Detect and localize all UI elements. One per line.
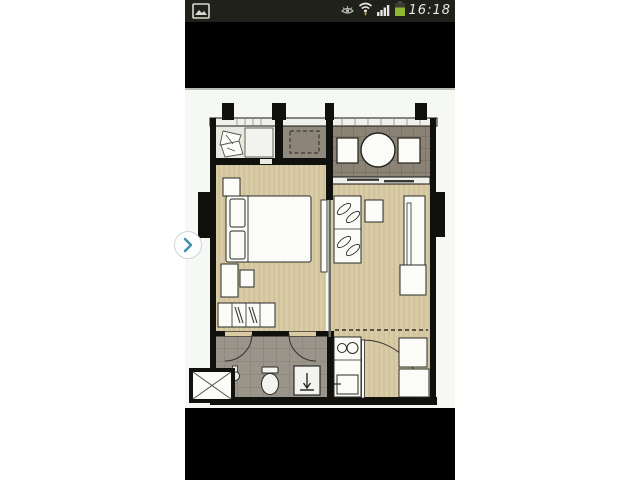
daybed-sofa bbox=[334, 196, 361, 263]
bed-bench bbox=[221, 264, 238, 297]
signal-strength-icon bbox=[376, 2, 391, 21]
terrace-sliding-window bbox=[331, 177, 430, 184]
shoe-cabinet-upper bbox=[399, 338, 427, 367]
bed-side-table bbox=[240, 270, 254, 287]
nightstand bbox=[223, 178, 240, 196]
wall-cabinet bbox=[400, 265, 426, 295]
side-table bbox=[365, 200, 383, 222]
shower bbox=[294, 366, 320, 395]
android-status-bar: 16:18 bbox=[185, 0, 455, 22]
shoe-cabinet-lower bbox=[399, 369, 429, 397]
wifi-icon bbox=[358, 1, 373, 21]
window-band-top bbox=[210, 118, 437, 126]
next-image-chevron-button[interactable] bbox=[174, 231, 202, 259]
terrace-round-table bbox=[361, 133, 395, 167]
double-bed bbox=[226, 196, 311, 262]
wardrobe bbox=[218, 303, 275, 327]
battery-icon bbox=[394, 1, 406, 21]
browser-page-background: 16:18 bbox=[0, 0, 640, 480]
floor-plan-image bbox=[185, 90, 455, 408]
chevron-right-icon bbox=[182, 237, 194, 253]
floor-plan-photo[interactable] bbox=[185, 88, 455, 408]
shaft-x-box bbox=[191, 370, 233, 401]
balcony-cushions-sketch bbox=[220, 131, 243, 157]
balcony-panel bbox=[245, 128, 273, 157]
kitchen-counter bbox=[334, 337, 361, 397]
status-bar-clock: 16:18 bbox=[409, 0, 451, 22]
bedroom-door-leaf bbox=[321, 200, 327, 272]
smart-stay-eye-icon bbox=[340, 2, 355, 21]
ac-unit-dashed-outline bbox=[290, 131, 319, 153]
screenshot-thumbnail-icon bbox=[192, 3, 210, 23]
phone-screenshot: 16:18 bbox=[185, 0, 455, 480]
